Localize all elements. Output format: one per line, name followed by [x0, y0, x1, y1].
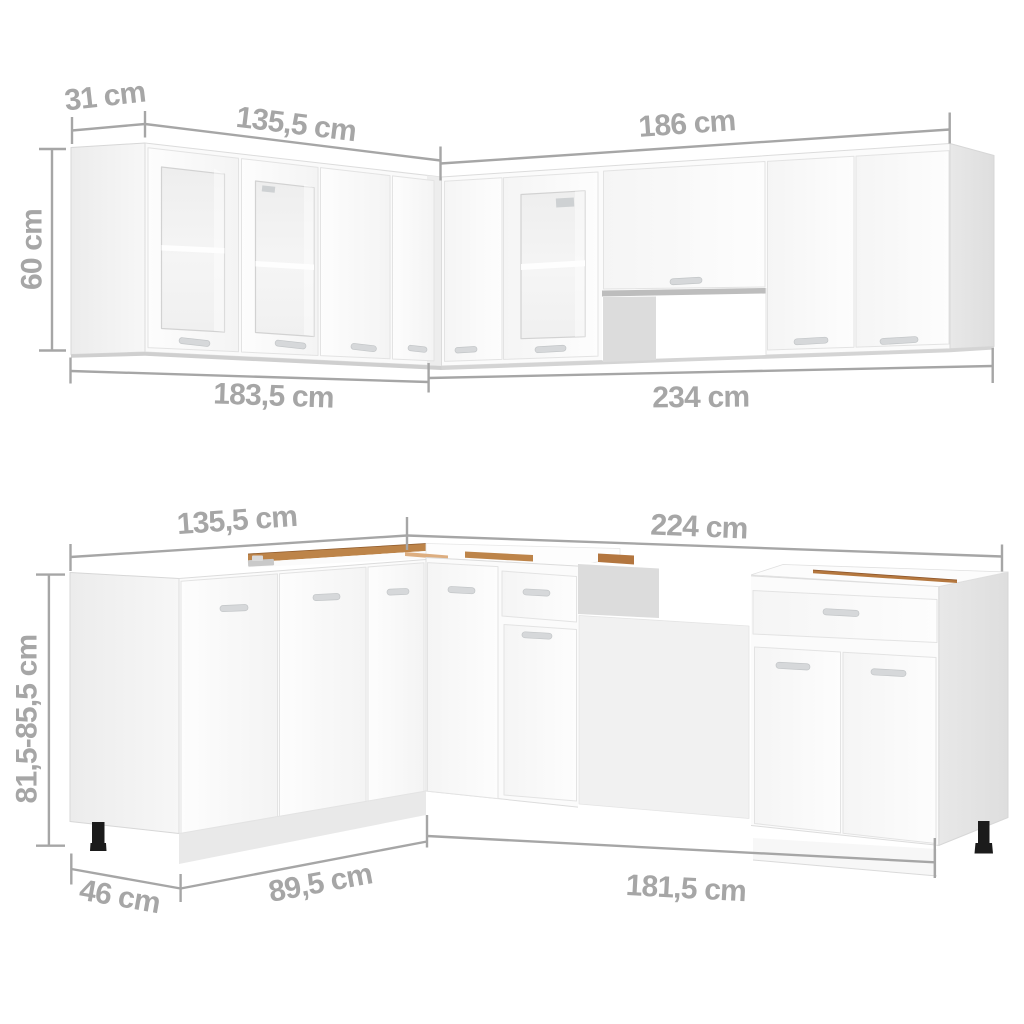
svg-text:60 cm: 60 cm [16, 209, 49, 290]
svg-text:183,5 cm: 183,5 cm [213, 377, 334, 414]
svg-text:234 cm: 234 cm [652, 381, 749, 415]
svg-text:81,5-85,5 cm: 81,5-85,5 cm [11, 635, 44, 804]
svg-text:186 cm: 186 cm [637, 104, 736, 144]
svg-text:181,5 cm: 181,5 cm [625, 869, 747, 908]
svg-text:224 cm: 224 cm [650, 508, 748, 545]
